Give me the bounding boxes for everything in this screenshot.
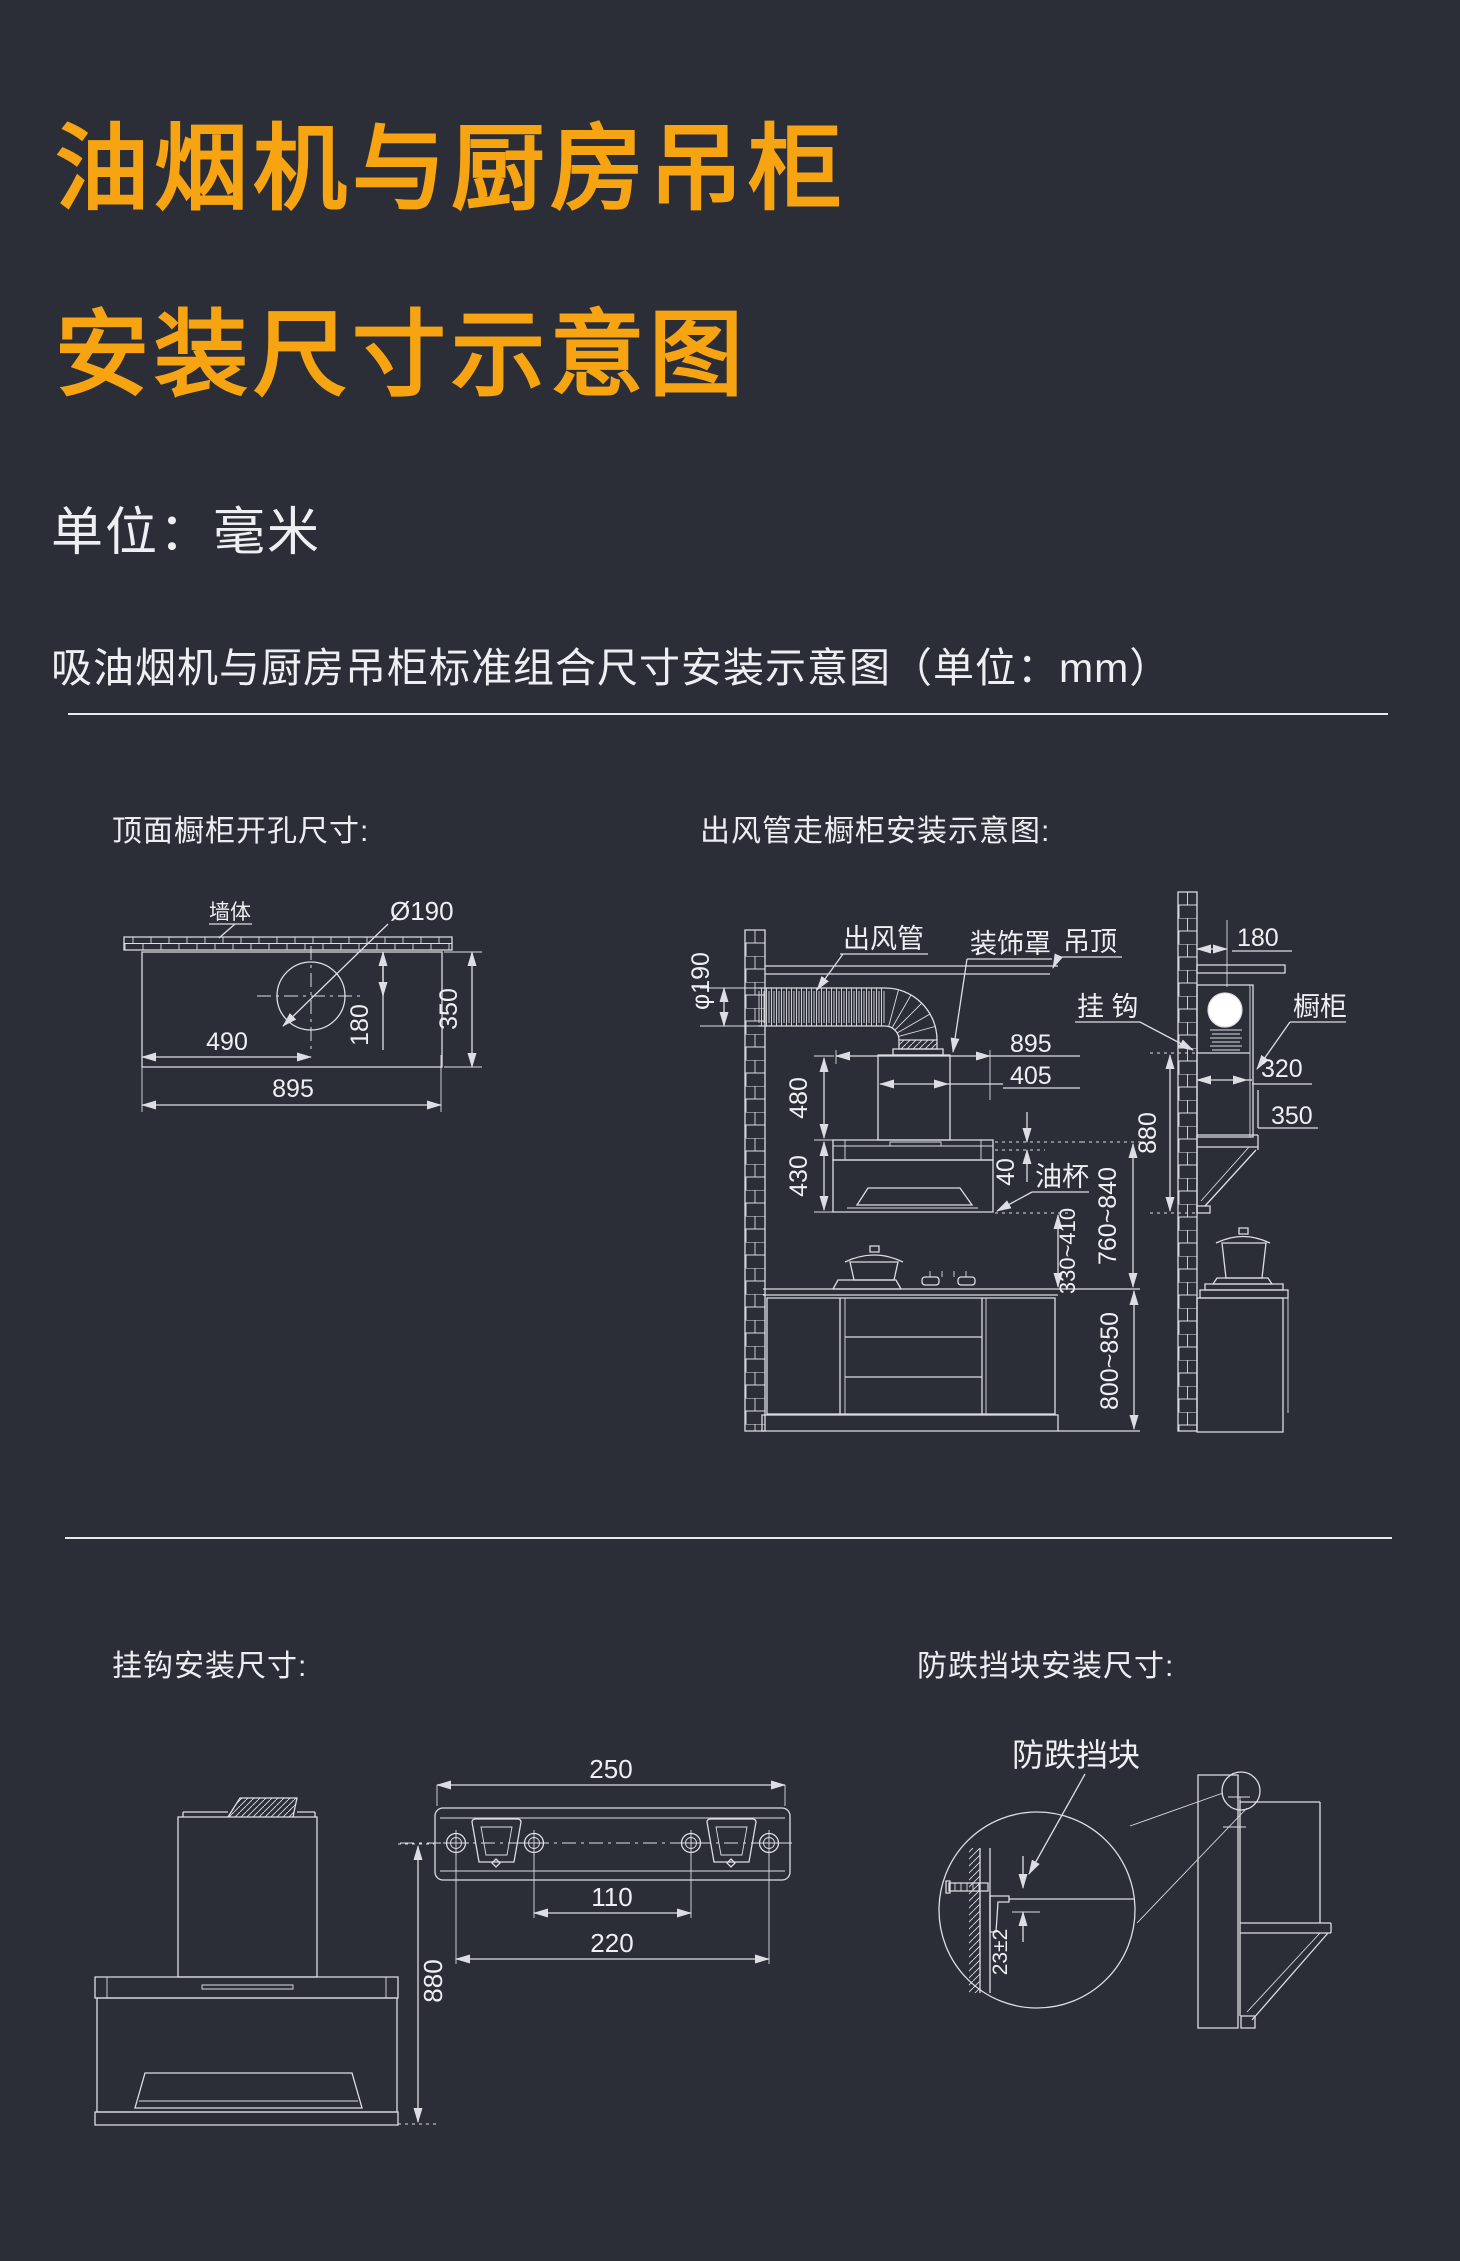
antifall-side-view xyxy=(1130,1772,1331,2028)
dim-cabinet-clearance: 350 xyxy=(1271,1102,1313,1130)
page-title-line2: 安装尺寸示意图 xyxy=(55,308,748,402)
dim-cabinet-depth: 320 xyxy=(1261,1055,1303,1083)
duct-label: 出风管 xyxy=(843,924,924,954)
hood xyxy=(833,1140,993,1212)
dim-block-offset: 23±2 xyxy=(989,1929,1012,1976)
duct xyxy=(758,988,943,1055)
decorative-cover xyxy=(878,1055,950,1140)
diagram-cabinet-cutout: 墙体 Ø190 180 490 895 350 xyxy=(60,860,500,1130)
page-title-line1: 油烟机与厨房吊柜 xyxy=(55,122,847,216)
section-title-hook: 挂钩安装尺寸: xyxy=(112,1641,307,1685)
dim-180: 180 xyxy=(346,1004,374,1046)
page: { "page": { "colors": { "background": "#… xyxy=(0,0,1460,2261)
unit-label: 单位：毫米 xyxy=(51,490,321,565)
hood-front xyxy=(95,1798,398,2125)
front-view: 出风管 装饰罩 吊顶 油杯 φ190 895 405 480 430 xyxy=(687,924,1143,1431)
counter-stove xyxy=(763,1246,1140,1295)
dim-cover-width: 405 xyxy=(1010,1062,1052,1090)
diagram-hook-mounting: 880 250 110 xyxy=(60,1690,840,2170)
hole-diameter-label: Ø190 xyxy=(390,896,454,926)
divider-top xyxy=(68,713,1388,715)
divider-middle xyxy=(65,1537,1392,1539)
section-title-duct-route: 出风管走橱柜安装示意图: xyxy=(700,806,1050,850)
hook-plate xyxy=(400,1808,792,1880)
dim-hood-to-counter: 330~410 xyxy=(1055,1208,1080,1294)
cabinet-label: 橱柜 xyxy=(1293,992,1347,1022)
dim-hang-height: 880 xyxy=(1134,1112,1162,1154)
page-subtitle: 吸油烟机与厨房吊柜标准组合尺寸安装示意图（单位：mm） xyxy=(51,634,1171,694)
antifall-block-shape xyxy=(990,1896,1009,1932)
dim-895: 895 xyxy=(272,1075,314,1103)
section-title-cutout: 顶面橱柜开孔尺寸: xyxy=(112,806,369,850)
dim-490: 490 xyxy=(206,1028,248,1056)
base-cabinet xyxy=(762,1298,1140,1431)
ceiling-label: 吊顶 xyxy=(1063,927,1117,957)
diagram-duct-route: 出风管 装饰罩 吊顶 油杯 φ190 895 405 480 430 xyxy=(678,858,1348,1460)
side-hood xyxy=(1197,1135,1258,1213)
cover-label: 装饰罩 xyxy=(970,929,1051,959)
dim-counter-height: 800~850 xyxy=(1096,1312,1124,1410)
dim-rim-gap: 40 xyxy=(992,1158,1020,1186)
diagram-antifall-block: 防跌挡块 23±2 xyxy=(880,1670,1340,2140)
side-counter-stove xyxy=(1197,1228,1288,1432)
dim-cover-height: 480 xyxy=(785,1077,813,1119)
dim-hood-width: 895 xyxy=(1010,1030,1052,1058)
hook-label: 挂 钩 xyxy=(1077,992,1139,1022)
dim-inner-holes: 110 xyxy=(591,1882,632,1912)
detail-circle: 23±2 xyxy=(939,1812,1135,2008)
dim-duct-diameter: φ190 xyxy=(687,952,715,1010)
wall-side xyxy=(1178,892,1197,1431)
side-cabinet-duct xyxy=(1197,985,1253,1137)
dim-hood-bottom-height: 760~840 xyxy=(1094,1167,1122,1265)
cutout-rect xyxy=(142,952,442,1067)
wall-label: 墙体 xyxy=(209,901,251,924)
dim-350: 350 xyxy=(435,988,463,1030)
dim-hood-height: 430 xyxy=(785,1155,813,1197)
dim-hang-height: 880 xyxy=(418,1959,448,2002)
block-label: 防跌挡块 xyxy=(1012,1737,1140,1773)
oil-cup-label: 油杯 xyxy=(1035,1162,1089,1192)
dim-outer-holes: 220 xyxy=(590,1928,633,1958)
wall-strip xyxy=(124,937,452,950)
dim-plate-width: 250 xyxy=(589,1754,632,1784)
dim-wall-offset: 180 xyxy=(1237,924,1279,952)
expansion-screw xyxy=(946,1881,988,1893)
